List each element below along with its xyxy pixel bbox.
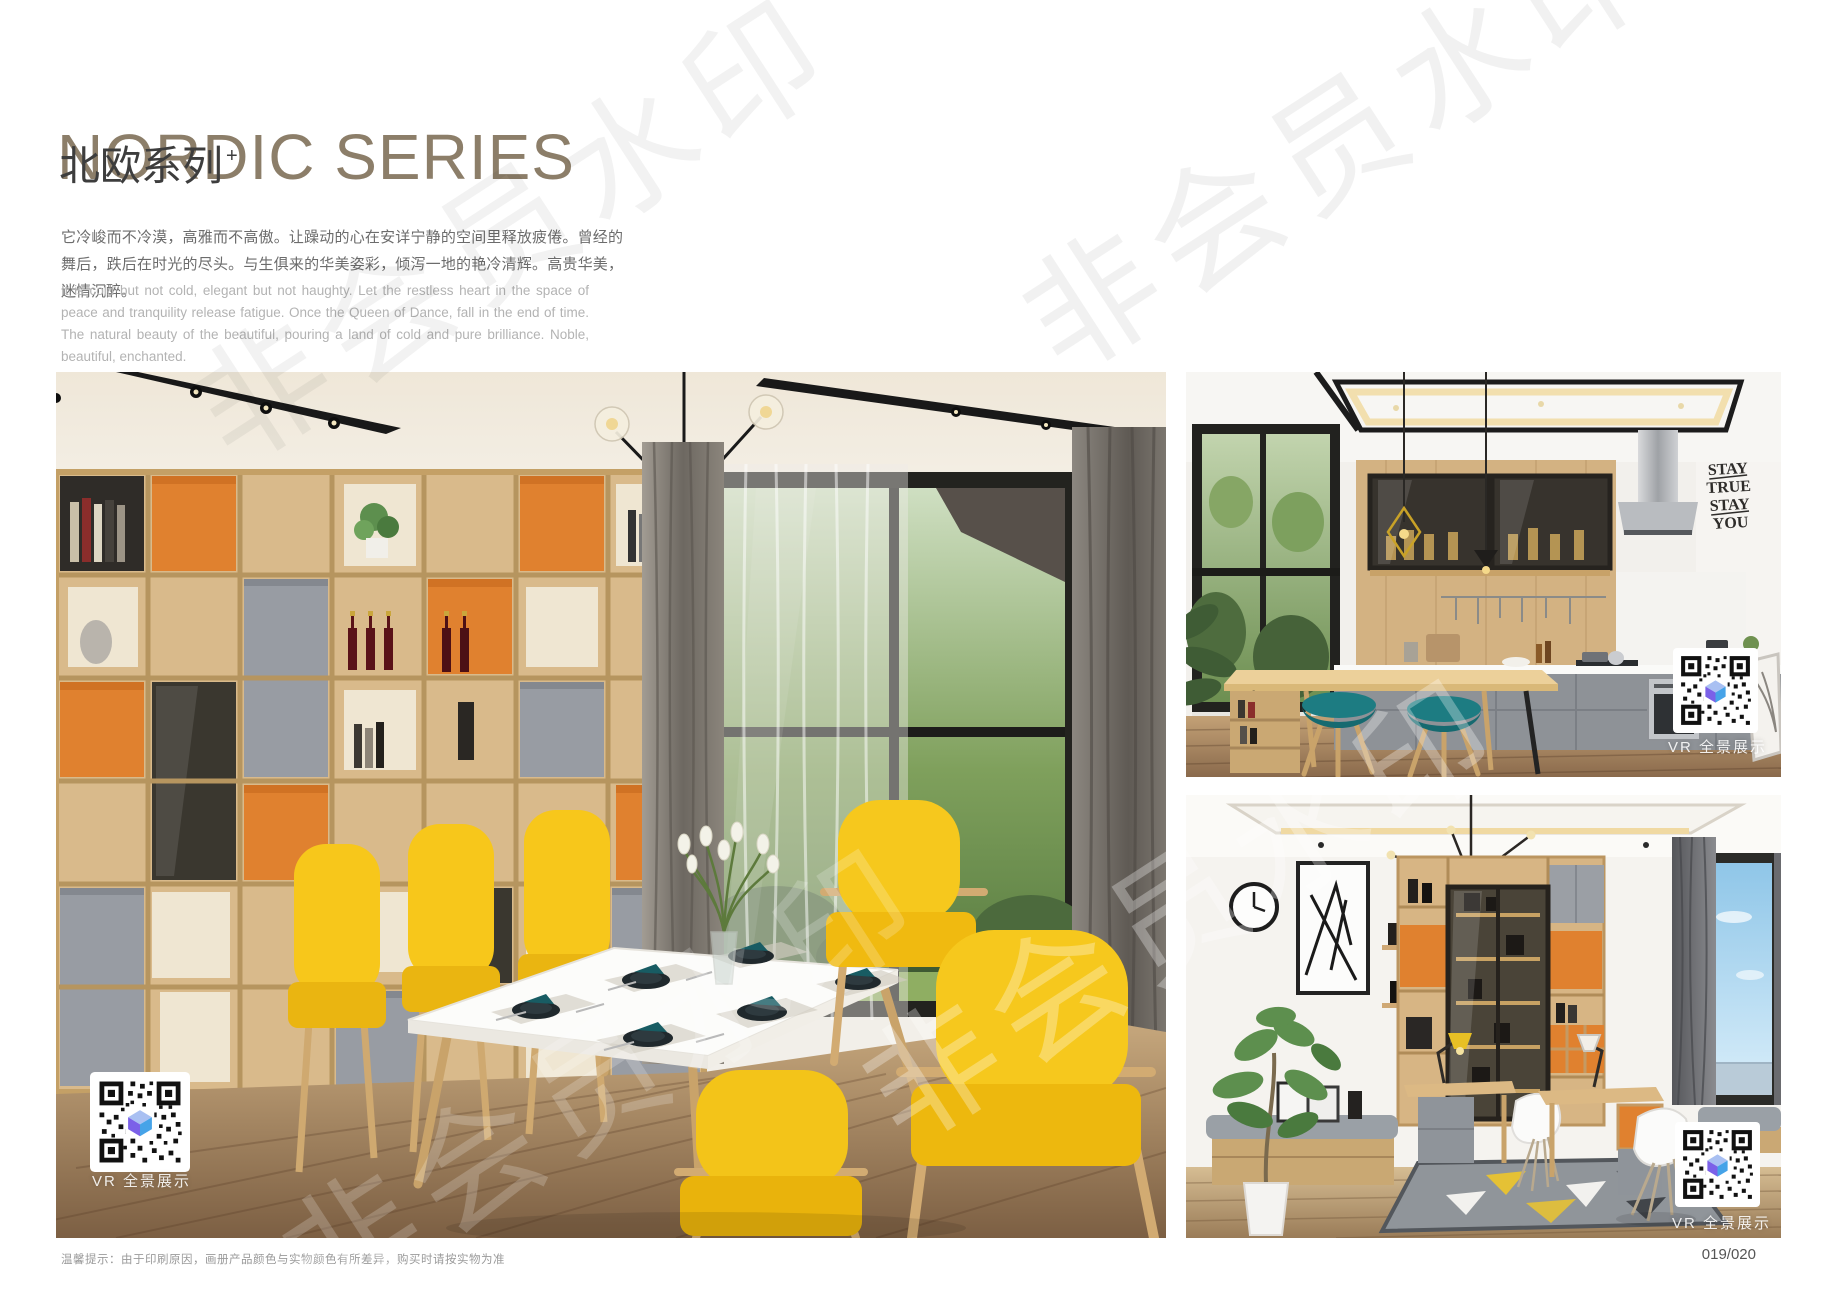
page-number: 019/020 xyxy=(1702,1246,1756,1263)
wall-clock xyxy=(1231,884,1277,930)
description-english: It is cold but not cold, elegant but not… xyxy=(61,280,589,368)
photo-kitchen: STAY TRUE STAY YOU xyxy=(1186,372,1781,777)
subtitle-cn: 北欧系列 xyxy=(59,143,223,189)
qr-code-vr-study[interactable] xyxy=(1675,1122,1760,1207)
dining-room-illustration xyxy=(56,372,1166,1238)
qr-code-vr-dining[interactable] xyxy=(90,1072,190,1172)
subtitle-plus: + xyxy=(226,145,238,167)
study-room-illustration xyxy=(1186,795,1781,1238)
ceramic-jar xyxy=(80,620,112,664)
photo-dining-room xyxy=(56,372,1166,1238)
vr-panorama-label-study[interactable]: VR 全景展示 xyxy=(1672,1212,1771,1233)
figurine xyxy=(458,702,474,760)
catalog-page: NORDIC SERIES 北欧系列+ 它冷峻而不冷漠，高雅而不高傲。让躁动的心… xyxy=(0,0,1836,1307)
vr-panorama-label-dining[interactable]: VR 全景展示 xyxy=(92,1170,191,1191)
vr-panorama-label-kitchen[interactable]: VR 全景展示 xyxy=(1668,736,1767,757)
watermark-text: 非会员水印 xyxy=(980,0,1696,410)
abstract-art-frame xyxy=(1298,863,1368,993)
side-shelf xyxy=(1230,691,1300,773)
footer-note: 温馨提示：由于印刷原因，画册产品颜色与实物颜色有所差异，购买时请按实物为准 xyxy=(61,1251,505,1267)
wall-decal-stay-true: STAY TRUE STAY YOU xyxy=(1705,460,1753,533)
qr-code-vr-kitchen[interactable] xyxy=(1673,648,1758,733)
photo-study-room xyxy=(1186,795,1781,1238)
page-subtitle: 北欧系列+ xyxy=(59,146,238,187)
kitchen-illustration: STAY TRUE STAY YOU xyxy=(1186,372,1781,777)
svg-text:YOU: YOU xyxy=(1712,514,1749,533)
svg-text:TRUE: TRUE xyxy=(1706,478,1751,497)
